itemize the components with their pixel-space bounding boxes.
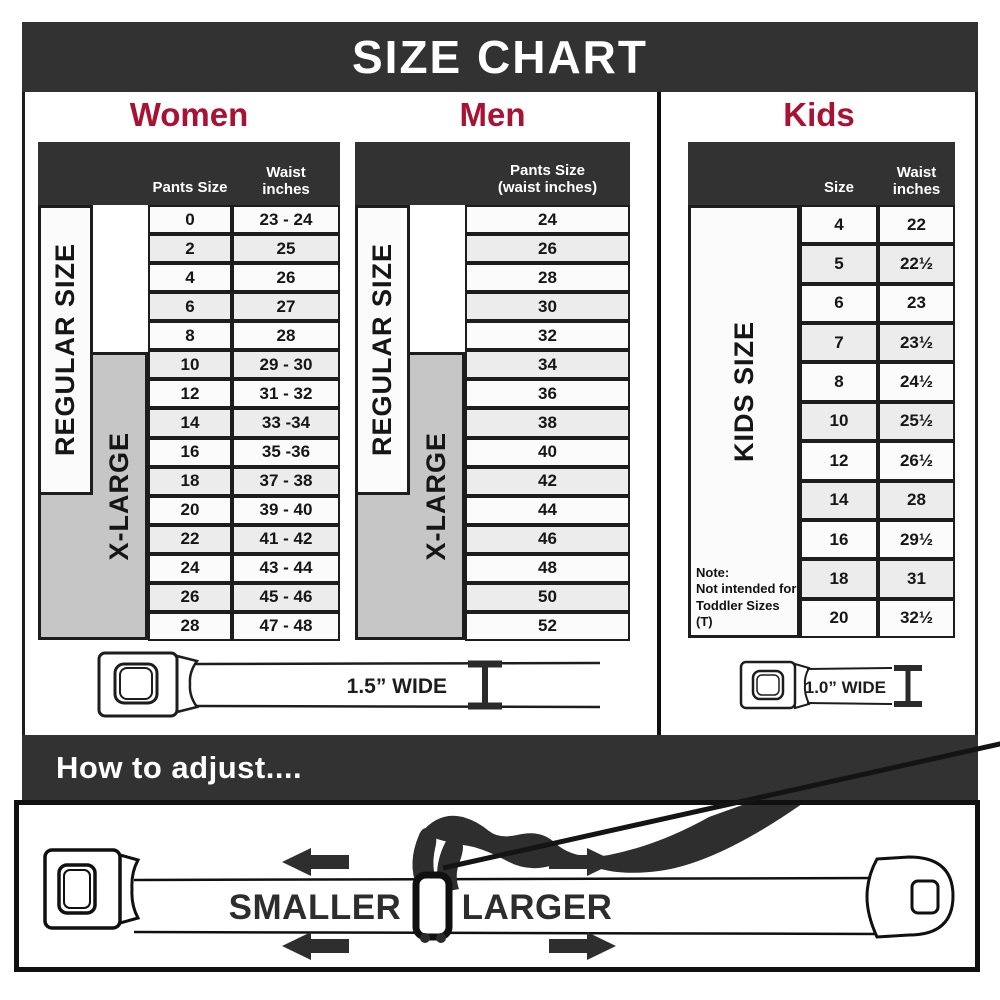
table-row: 18 37 - 38 [148,467,340,496]
pants-size-cell: 52 [465,612,630,641]
table-row: 14 28 [800,481,955,520]
seatbelt-buckle-icon [45,850,138,928]
kids-size-table: 4 22 5 22½ 6 23 7 23½ 8 24½ [800,205,955,638]
table-row: 6 27 [148,292,340,321]
table-row: 8 24½ [800,362,955,401]
waist-cell: 23 - 24 [232,205,340,234]
table-row: 42 [465,467,630,496]
men-size-table: 24 26 28 30 32 34 36 [465,205,630,641]
pants-size-cell: 28 [148,612,232,641]
pants-size-cell: 6 [148,292,232,321]
belt-tip [867,857,953,937]
pants-size-cell: 34 [465,350,630,379]
waist-cell: 27 [232,292,340,321]
women-size-table: 0 23 - 24 2 25 4 26 6 27 8 28 [148,205,340,641]
table-row: 28 47 - 48 [148,612,340,641]
table-row: 16 35 -36 [148,438,340,467]
table-row: 5 22½ [800,244,955,283]
section-divider [657,92,661,735]
larger-label: LARGER [462,888,613,927]
pants-size-cell: 8 [148,321,232,350]
pants-size-cell: 42 [465,467,630,496]
table-row: 24 [465,205,630,234]
kids-size-label: KIDS SIZE [729,321,760,462]
waist-cell: 29½ [878,520,955,559]
table-row: 26 45 - 46 [148,583,340,612]
waist-cell: 47 - 48 [232,612,340,641]
width-marker-icon [468,664,502,706]
size-cell: 14 [800,481,878,520]
pants-size-cell: 48 [465,554,630,583]
width-marker-icon [894,668,922,704]
pants-size-cell: 16 [148,438,232,467]
pants-size-cell: 24 [465,205,630,234]
pants-size-cell: 32 [465,321,630,350]
table-row: 50 [465,583,630,612]
table-row: 36 [465,379,630,408]
arrow-right-icon [549,932,616,960]
table-row: 0 23 - 24 [148,205,340,234]
pants-size-cell: 28 [465,263,630,292]
men-xlarge-label: X-LARGE [421,432,452,561]
kids-belt-illustration: 1.0” WIDE [738,660,938,712]
men-regular-label: REGULAR SIZE [367,243,398,456]
kids-section-title: Kids [660,96,978,136]
table-row: 4 26 [148,263,340,292]
size-chart-page: SIZE CHART Women Men Kids Pants Size Wai… [0,0,1000,1000]
size-cell: 8 [800,362,878,401]
waist-cell: 22 [878,205,955,244]
men-table-header: Pants Size (waist inches) [355,142,630,205]
size-cell: 6 [800,284,878,323]
kids-belt-width-label: 1.0” WIDE [805,678,886,697]
size-cell: 4 [800,205,878,244]
kids-size-band: KIDS SIZE Note: Not intended for Toddler… [688,205,800,638]
table-row: 10 29 - 30 [148,350,340,379]
table-row: 52 [465,612,630,641]
page-title-bar: SIZE CHART [22,22,978,92]
size-cell: 16 [800,520,878,559]
table-row: 4 22 [800,205,955,244]
table-row: 10 25½ [800,402,955,441]
waist-cell: 28 [878,481,955,520]
table-row: 18 31 [800,559,955,598]
table-row: 38 [465,408,630,437]
pants-size-cell: 38 [465,408,630,437]
waist-cell: 31 [878,559,955,598]
table-row: 32 [465,321,630,350]
adjust-belt-illustration: SMALLER LARGER [19,805,975,967]
waist-cell: 33 -34 [232,408,340,437]
waist-cell: 26½ [878,441,955,480]
pants-size-cell: 14 [148,408,232,437]
waist-cell: 41 - 42 [232,525,340,554]
page-title: SIZE CHART [352,30,648,84]
waist-cell: 31 - 32 [232,379,340,408]
table-row: 28 [465,263,630,292]
waist-cell: 43 - 44 [232,554,340,583]
table-row: 46 [465,525,630,554]
men-section-title: Men [355,96,630,136]
waist-cell: 45 - 46 [232,583,340,612]
pants-size-cell: 18 [148,467,232,496]
waist-cell: 26 [232,263,340,292]
smaller-label: SMALLER [229,888,402,927]
table-row: 24 43 - 44 [148,554,340,583]
table-row: 2 25 [148,234,340,263]
pants-size-cell: 20 [148,496,232,525]
waist-cell: 25½ [878,402,955,441]
how-to-adjust-bar: How to adjust.... [22,735,978,800]
women-regular-label: REGULAR SIZE [50,243,81,456]
women-waist-header: Waist inches [232,165,340,199]
pants-size-cell: 44 [465,496,630,525]
pants-size-cell: 24 [148,554,232,583]
pants-size-cell: 36 [465,379,630,408]
women-xlarge-label: X-LARGE [104,432,135,561]
pants-size-cell: 30 [465,292,630,321]
pants-size-cell: 12 [148,379,232,408]
table-row: 34 [465,350,630,379]
pants-size-cell: 46 [465,525,630,554]
adult-belt-illustration: 1.5” WIDE [95,650,605,720]
arrow-left-icon [282,848,349,876]
waist-cell: 24½ [878,362,955,401]
waist-cell: 29 - 30 [232,350,340,379]
pants-size-cell: 10 [148,350,232,379]
men-regular-band: REGULAR SIZE [355,205,410,495]
adjust-illustration-frame: SMALLER LARGER [14,800,980,972]
waist-cell: 23 [878,284,955,323]
women-section-title: Women [38,96,340,136]
women-regular-band: REGULAR SIZE [38,205,93,495]
pants-size-cell: 4 [148,263,232,292]
women-pants-size-header: Pants Size [148,180,232,197]
pants-size-cell: 2 [148,234,232,263]
how-to-adjust-title: How to adjust.... [56,750,302,786]
table-row: 16 29½ [800,520,955,559]
adult-belt-width-label: 1.5” WIDE [347,675,447,698]
men-pants-size-header: Pants Size (waist inches) [465,163,630,197]
pants-size-cell: 26 [148,583,232,612]
waist-cell: 28 [232,321,340,350]
waist-cell: 35 -36 [232,438,340,467]
table-row: 40 [465,438,630,467]
waist-cell: 37 - 38 [232,467,340,496]
seatbelt-buckle-icon [741,662,809,708]
arrow-left-icon [282,932,349,960]
table-row: 8 28 [148,321,340,350]
kids-size-header: Size [800,180,878,197]
size-cell: 10 [800,402,878,441]
table-row: 7 23½ [800,323,955,362]
belt-slider [416,875,449,943]
kids-table-header: Size Waist inches [688,142,955,205]
table-row: 20 39 - 40 [148,496,340,525]
table-row: 48 [465,554,630,583]
table-row: 30 [465,292,630,321]
waist-cell: 39 - 40 [232,496,340,525]
table-row: 44 [465,496,630,525]
belt-tip-slot [912,881,938,913]
waist-cell: 32½ [878,599,955,638]
waist-cell: 22½ [878,244,955,283]
size-cell: 20 [800,599,878,638]
pants-size-cell: 22 [148,525,232,554]
pants-size-cell: 40 [465,438,630,467]
pants-size-cell: 0 [148,205,232,234]
size-cell: 18 [800,559,878,598]
table-row: 22 41 - 42 [148,525,340,554]
size-cell: 7 [800,323,878,362]
size-cell: 12 [800,441,878,480]
table-row: 12 26½ [800,441,955,480]
waist-cell: 23½ [878,323,955,362]
kids-note: Note: Not intended for Toddler Sizes (T) [696,565,797,630]
kids-waist-header: Waist inches [878,165,955,199]
table-row: 6 23 [800,284,955,323]
table-row: 14 33 -34 [148,408,340,437]
seatbelt-buckle-icon [99,653,197,716]
table-row: 12 31 - 32 [148,379,340,408]
women-table-header: Pants Size Waist inches [38,142,340,205]
waist-cell: 25 [232,234,340,263]
size-cell: 5 [800,244,878,283]
pants-size-cell: 26 [465,234,630,263]
table-row: 26 [465,234,630,263]
pants-size-cell: 50 [465,583,630,612]
table-row: 20 32½ [800,599,955,638]
